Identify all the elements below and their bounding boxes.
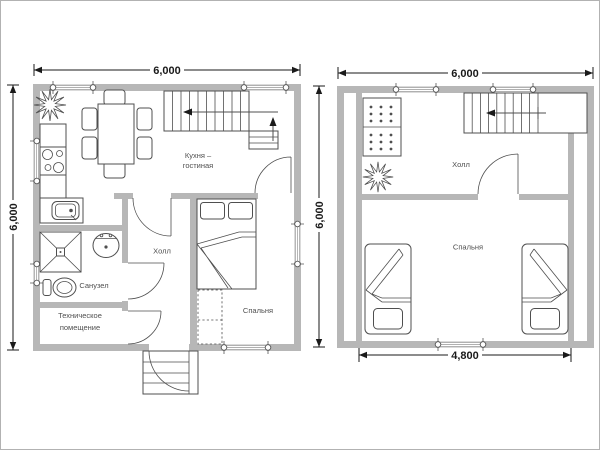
dimension-label: 6,000 [8, 203, 20, 231]
room-label-bedroom: Спальня [453, 243, 483, 252]
stairs-icon [164, 91, 278, 149]
room-label-kitchen-line2: гостиная [183, 161, 214, 170]
stairs-icon [464, 93, 587, 133]
window [221, 341, 271, 354]
door-arc [133, 198, 171, 236]
window [393, 83, 439, 96]
dimension-top: 6,000 [338, 66, 593, 80]
room-label-kitchen-line1: Кухня – [185, 151, 212, 160]
dimension-left: 6,000 [312, 86, 326, 347]
room-label-bathroom: Санузел [79, 281, 108, 290]
room-label-bedroom: Спальня [243, 306, 273, 315]
dimension-left: 6,000 [6, 85, 20, 350]
washbasin-icon [93, 234, 119, 258]
double-bed-icon [197, 199, 256, 289]
room-label-hall: Холл [153, 247, 171, 256]
door-arc [128, 263, 164, 299]
door-arc [478, 154, 518, 194]
dimension-label: 4,800 [451, 350, 479, 362]
room-label-hall: Холл [452, 160, 470, 169]
room-label-tech-line2: помещение [60, 323, 100, 332]
dimension-top: 6,000 [34, 63, 300, 77]
plant-icon [363, 162, 393, 192]
toilet-icon [43, 278, 76, 297]
first-floor-plan: 6,000 6,000 Кухня – гостиная Холл Санузе… [6, 63, 304, 394]
dimension-label: 6,000 [314, 201, 326, 229]
door-arc [255, 157, 291, 193]
sofa-icon [363, 98, 401, 156]
dining-set-icon [82, 90, 152, 178]
floor-plan-canvas: 6,000 6,000 Кухня – гостиная Холл Санузе… [1, 1, 600, 450]
door-arc [128, 311, 161, 344]
shower-icon [40, 232, 81, 272]
dimension-label: 6,000 [153, 65, 181, 77]
second-floor-plan: 6,000 6,000 4,800 Холл Спальня [312, 66, 594, 362]
entrance-steps-icon [143, 351, 198, 394]
floor-plan-sheet: 6,000 6,000 Кухня – гостиная Холл Санузе… [0, 0, 600, 450]
window [291, 221, 304, 267]
stove-icon [40, 147, 66, 175]
dimension-label: 6,000 [451, 68, 479, 80]
single-bed-icon [522, 244, 568, 334]
dimension-bottom: 4,800 [359, 348, 571, 362]
kitchen-sink-icon [40, 198, 83, 223]
single-bed-icon [365, 244, 411, 334]
room-label-tech-line1: Техническое [58, 311, 102, 320]
wardrobe-icon [198, 290, 222, 344]
